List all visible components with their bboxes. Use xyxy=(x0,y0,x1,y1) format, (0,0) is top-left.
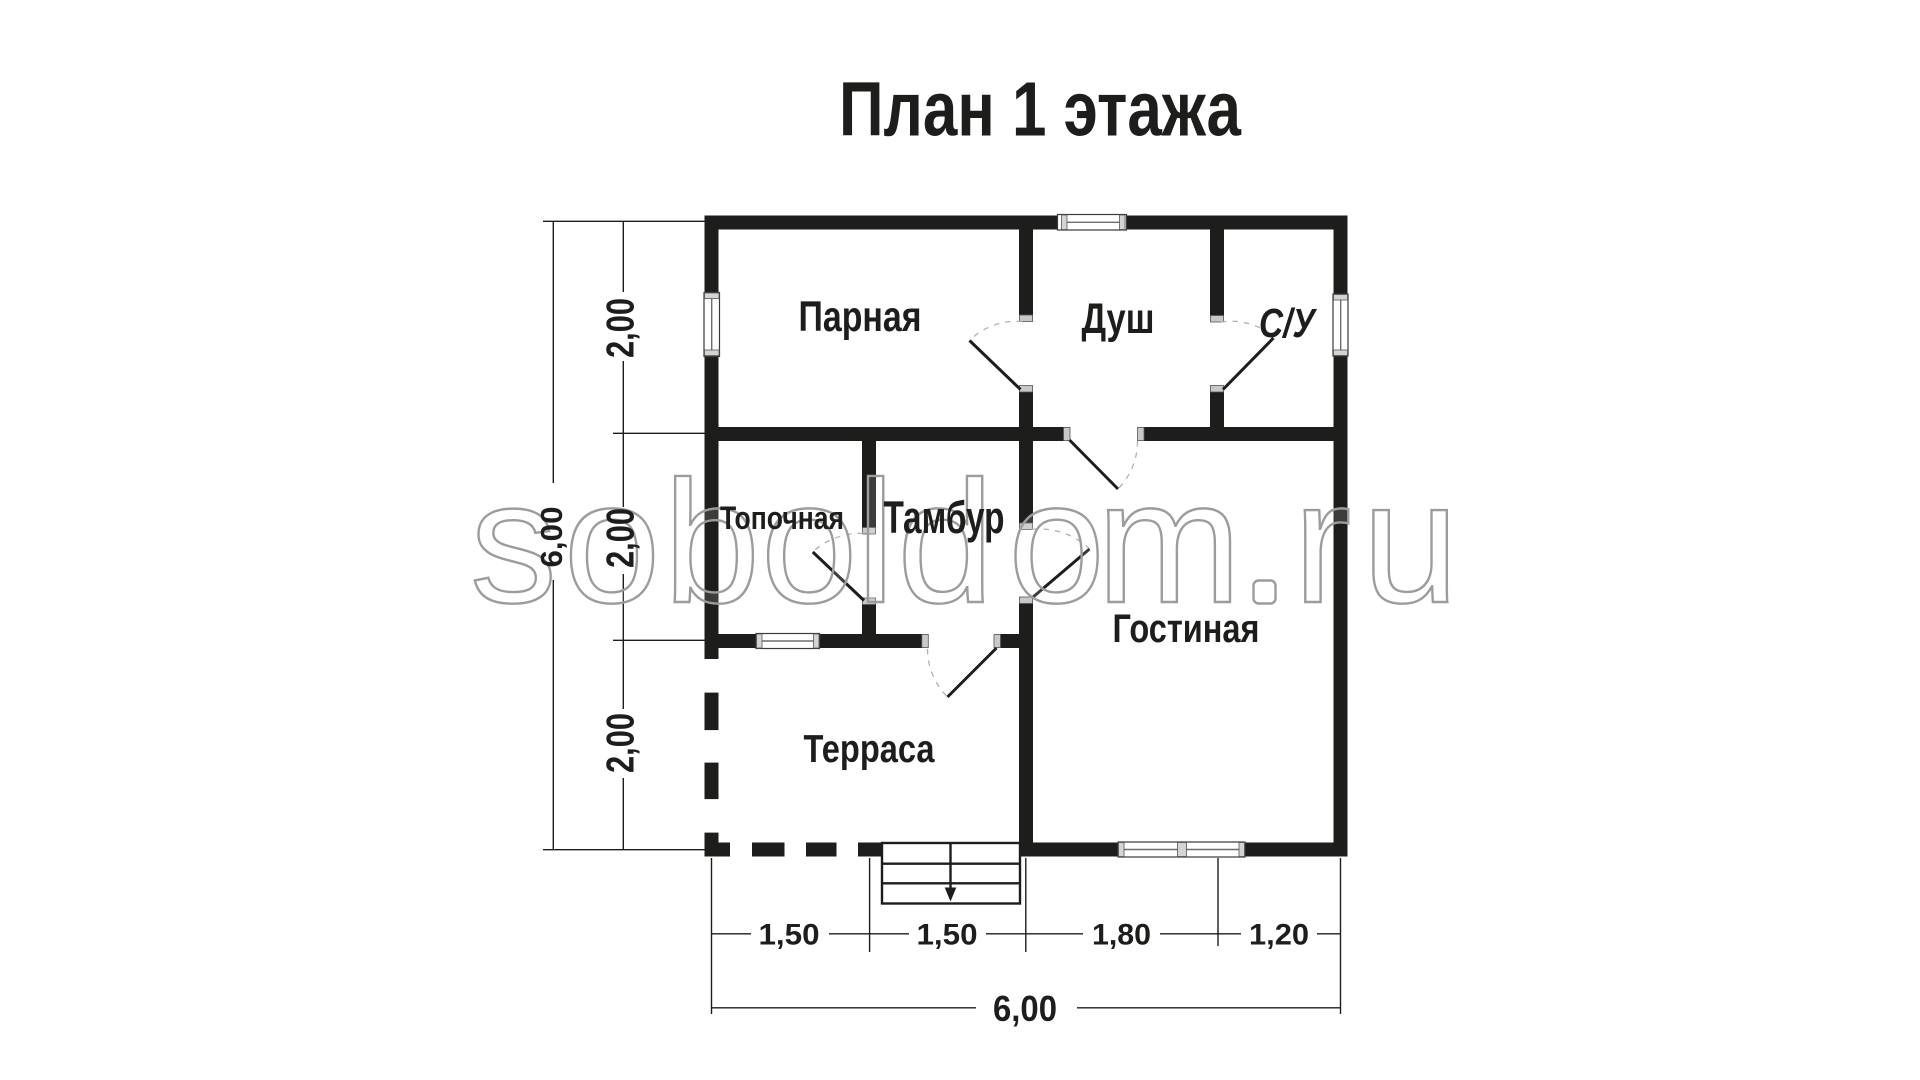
svg-text:Тамбур: Тамбур xyxy=(884,492,1005,543)
svg-text:2,00: 2,00 xyxy=(600,713,643,773)
svg-text:o: o xyxy=(1008,444,1105,639)
svg-text:o: o xyxy=(761,444,858,639)
svg-text:Душ: Душ xyxy=(1082,295,1155,343)
svg-text:Топочная: Топочная xyxy=(720,500,844,536)
svg-text:2,00: 2,00 xyxy=(600,298,643,358)
svg-text:b: b xyxy=(663,444,760,639)
svg-text:r: r xyxy=(1293,444,1351,639)
svg-text:Парная: Парная xyxy=(799,293,922,341)
svg-text:2,00: 2,00 xyxy=(600,508,643,568)
svg-text:План 1 этажа: План 1 этажа xyxy=(839,67,1242,153)
svg-text:1,50: 1,50 xyxy=(759,919,820,952)
svg-text:u: u xyxy=(1362,444,1459,639)
svg-text:6,00: 6,00 xyxy=(534,507,569,568)
svg-text:1,20: 1,20 xyxy=(1249,919,1309,952)
svg-text:Гостиная: Гостиная xyxy=(1113,607,1260,651)
svg-text:1,50: 1,50 xyxy=(917,919,978,952)
svg-text:1,80: 1,80 xyxy=(1092,919,1151,952)
svg-text:6,00: 6,00 xyxy=(993,988,1057,1029)
svg-text:С/У: С/У xyxy=(1259,300,1318,346)
svg-text:Терраса: Терраса xyxy=(804,728,935,771)
